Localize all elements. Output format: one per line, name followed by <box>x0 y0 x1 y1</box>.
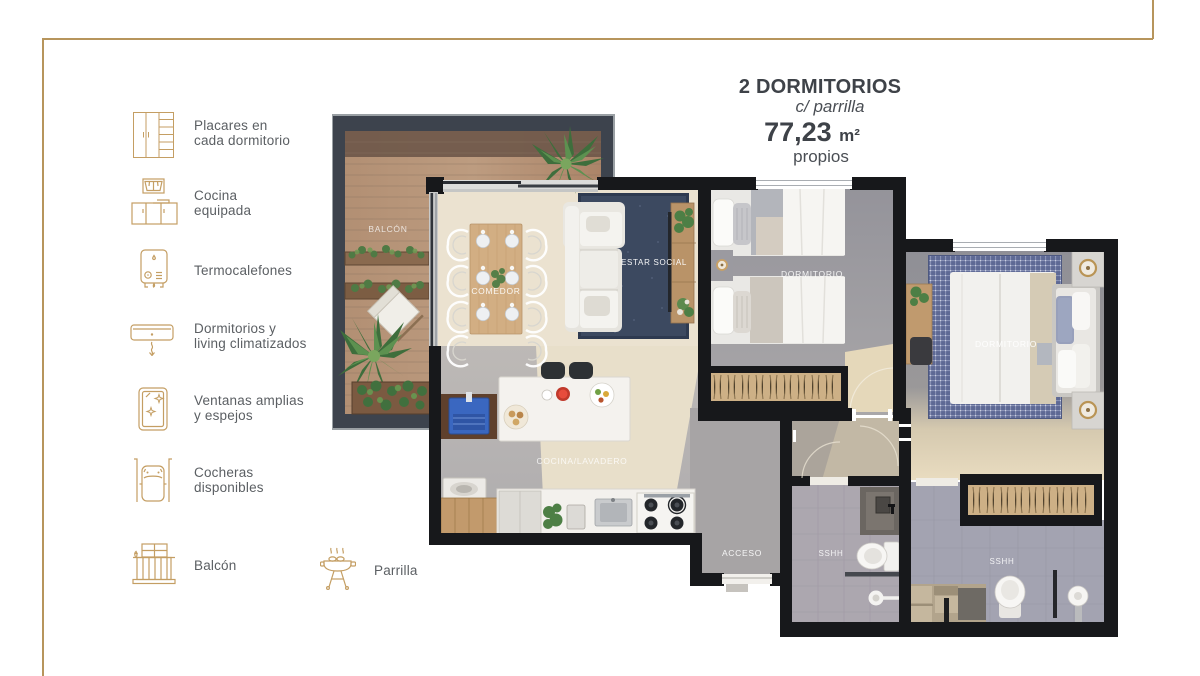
svg-text:ESTAR SOCIAL: ESTAR SOCIAL <box>621 258 687 267</box>
svg-text:DORMITORIO: DORMITORIO <box>781 269 843 279</box>
svg-text:BALCÓN: BALCÓN <box>368 224 407 234</box>
svg-text:ACCESO: ACCESO <box>722 548 762 558</box>
svg-text:COMEDOR: COMEDOR <box>471 286 520 296</box>
svg-text:SSHH: SSHH <box>818 549 843 558</box>
svg-text:DORMITORIO: DORMITORIO <box>975 339 1037 349</box>
svg-text:SSHH: SSHH <box>989 557 1014 566</box>
svg-text:COCINA/LAVADERO: COCINA/LAVADERO <box>537 456 628 466</box>
